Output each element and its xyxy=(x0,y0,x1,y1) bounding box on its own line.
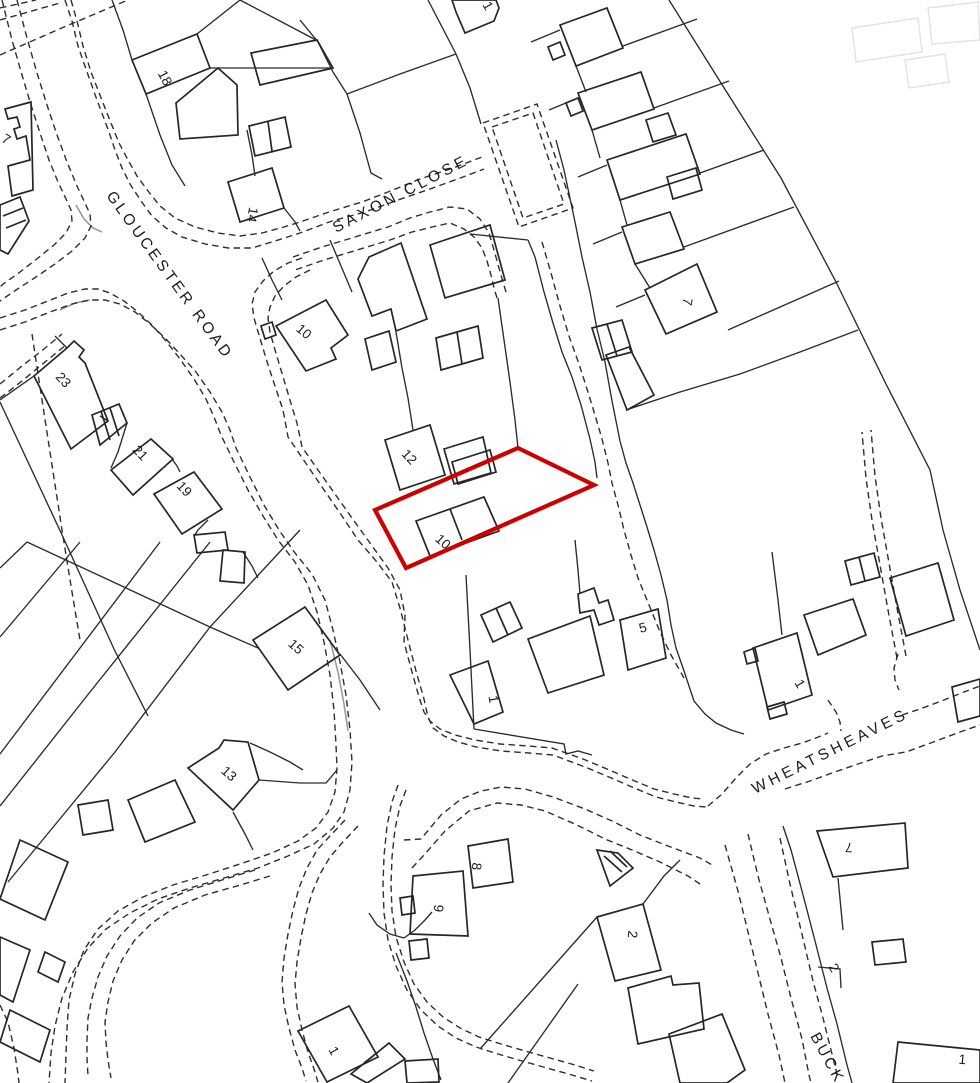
svg-text:9: 9 xyxy=(431,904,447,913)
svg-text:14: 14 xyxy=(244,206,261,224)
svg-text:1: 1 xyxy=(958,1052,967,1068)
svg-text:2: 2 xyxy=(625,930,641,939)
svg-text:8: 8 xyxy=(469,862,485,871)
svg-text:7: 7 xyxy=(845,840,853,855)
